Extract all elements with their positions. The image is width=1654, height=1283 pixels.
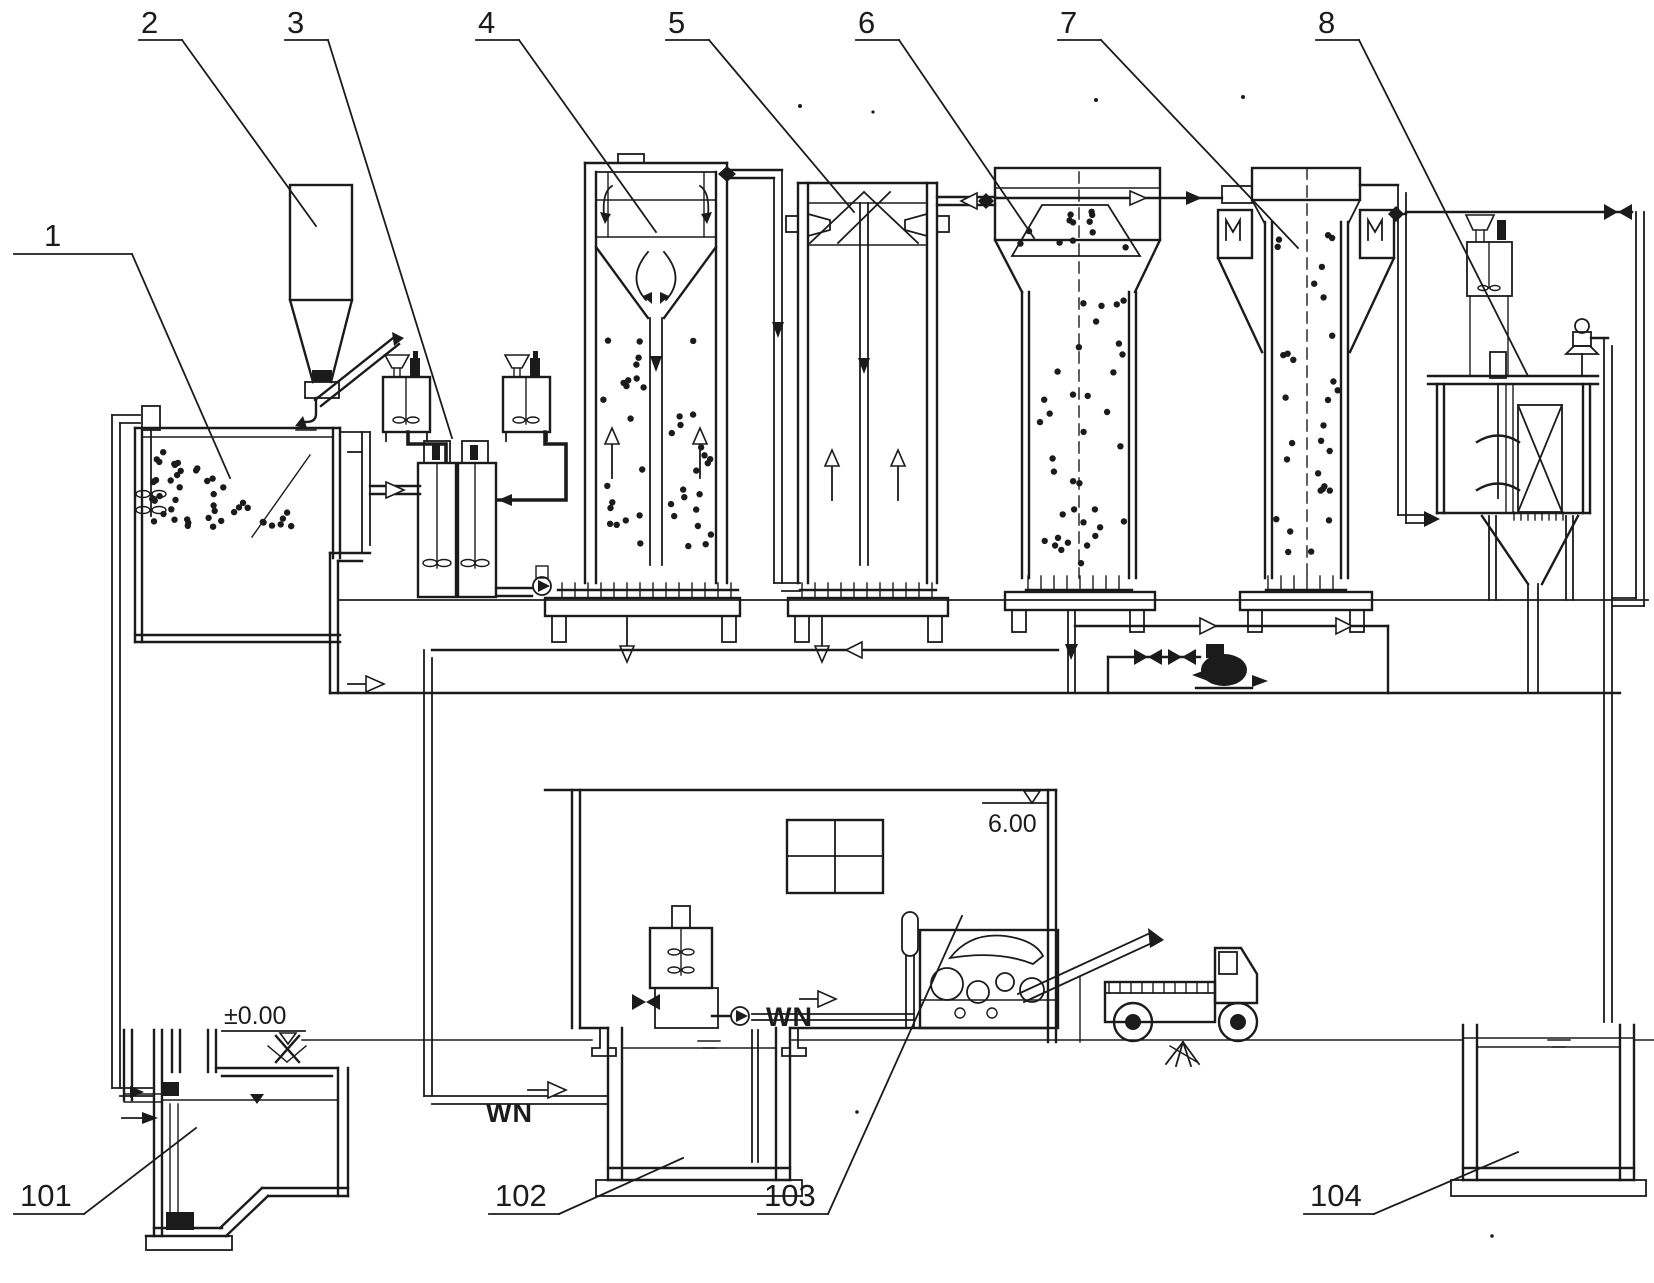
valve: [1168, 649, 1182, 665]
callout-label: 5: [668, 5, 685, 40]
reactor-4: [545, 154, 800, 662]
truck-bed: [1105, 982, 1215, 1022]
chemical-silo-2: [290, 185, 404, 428]
leader-line: [84, 1128, 196, 1214]
filtrate-pool-102: [596, 1028, 802, 1196]
valve: [1182, 649, 1196, 665]
roof-level-marker: 6.00: [983, 791, 1048, 838]
clarifier-8: [1428, 215, 1612, 1022]
base-slab: [1451, 1180, 1646, 1196]
flow-arrow: [386, 482, 404, 498]
floor-bracket: [592, 1028, 616, 1056]
chemical-drop-pipe: [498, 432, 566, 500]
flow-arrow: [818, 991, 836, 1007]
press-roller: [996, 973, 1014, 991]
launder-right: [1360, 210, 1394, 258]
callout-label: 101: [20, 1178, 72, 1213]
base-slab: [1005, 592, 1155, 610]
leader-line: [828, 916, 962, 1214]
callout-104: 104: [1304, 1152, 1518, 1214]
launder-left: [1218, 210, 1252, 258]
process-flow-diagram: ±0.00: [0, 0, 1654, 1283]
influent-arrow: [142, 1112, 158, 1124]
distributor-comb: [1028, 576, 1119, 590]
mixer-motor: [432, 445, 440, 460]
leader-line: [182, 40, 316, 226]
drain-arrow: [620, 646, 634, 662]
submersible-pump: [166, 1212, 194, 1230]
truck-cab: [1215, 948, 1257, 1003]
intake-riser-pipe: [112, 415, 179, 1098]
drain-pipe-label: WN: [486, 1098, 533, 1128]
feed-funnel: [385, 355, 409, 368]
leader-line: [519, 40, 656, 232]
ground-line: [302, 1040, 1654, 1066]
floor-bracket: [782, 1028, 806, 1056]
callout-label: 3: [287, 5, 304, 40]
dissolving-tank-a: [383, 351, 446, 461]
roof-elevation-label: 6.00: [988, 810, 1037, 838]
discharge-chute: [1018, 934, 1148, 994]
mixer-motor: [530, 358, 540, 377]
effluent-pool-104: [1451, 1025, 1646, 1196]
flow-arrow: [961, 193, 977, 209]
pedestal: [655, 988, 718, 1028]
callout-label: 7: [1060, 5, 1077, 40]
stand-column: [902, 912, 918, 956]
flow-arrow: [498, 494, 512, 506]
distributor-comb: [1268, 576, 1333, 590]
rapid-mix-tanks-3: [418, 441, 551, 597]
callout-5: 5: [666, 5, 854, 212]
callout-label: 1: [44, 218, 61, 253]
leader-line: [899, 40, 1034, 238]
ground-elevation-label: ±0.00: [224, 1002, 286, 1030]
ground-level-marker: ±0.00: [222, 1002, 306, 1062]
leader-line: [132, 254, 230, 478]
callout-label: 2: [141, 5, 158, 40]
mixer-motor: [410, 358, 420, 377]
deck-and-manifolds: WN: [330, 600, 1648, 1128]
callout-label: 103: [764, 1178, 816, 1213]
drain-arrow: [815, 646, 829, 662]
water-level-symbol: [250, 1094, 264, 1104]
flow-arrow: [366, 676, 384, 692]
bed-rail-ticks: [1109, 982, 1208, 993]
leader-line: [1359, 40, 1528, 376]
media-dots: [1017, 209, 1129, 251]
cab-window: [1219, 952, 1237, 974]
valve: [646, 994, 660, 1010]
screw-conveyor: [315, 338, 393, 400]
callout-label: 4: [478, 5, 495, 40]
feed-funnel: [1466, 215, 1494, 230]
callout-label: 104: [1310, 1178, 1362, 1213]
callout-4: 4: [476, 5, 656, 232]
sludge-feed-unit: WN: [632, 906, 913, 1032]
callout-103: 103: [758, 916, 962, 1214]
media-dots: [1037, 297, 1127, 566]
mixer-motor: [470, 445, 478, 460]
callout-label: 8: [1318, 5, 1335, 40]
press-hood: [950, 935, 1043, 964]
sump-pool-101: [122, 1030, 348, 1250]
mixer-motor: [672, 906, 690, 928]
flow-arrow: [1130, 191, 1146, 205]
feed-funnel: [505, 355, 529, 368]
leader-line: [1101, 40, 1298, 248]
leader-line: [1374, 1152, 1518, 1214]
presedimentation-tank-1: [135, 406, 420, 693]
mixer-motor: [142, 406, 160, 430]
flow-arrow: [846, 642, 862, 658]
valve: [1134, 649, 1148, 665]
callout-label: 102: [495, 1178, 547, 1213]
flow-arrow: [1186, 191, 1202, 205]
valve: [632, 994, 646, 1010]
dissolving-tank-b: [498, 351, 566, 506]
reactor-6: [995, 168, 1160, 693]
down-arrow: [1065, 644, 1078, 660]
flow-arrow: [1200, 618, 1216, 634]
callout-101: 101: [14, 1128, 196, 1214]
callout-label: 6: [858, 5, 875, 40]
callout-1: 1: [14, 218, 230, 478]
leader-line: [328, 40, 452, 438]
mixer-motor: [1497, 220, 1506, 240]
reactor-7: [1160, 168, 1644, 632]
mixer-motor: [1490, 352, 1506, 378]
down-arrow: [650, 356, 662, 372]
valve: [1148, 649, 1162, 665]
drawing-canvas: ±0.00: [0, 0, 1654, 1283]
reactor-5: [786, 183, 995, 662]
callout-102: 102: [489, 1158, 683, 1214]
dump-truck: [1105, 948, 1257, 1041]
base-slab: [1240, 592, 1372, 610]
